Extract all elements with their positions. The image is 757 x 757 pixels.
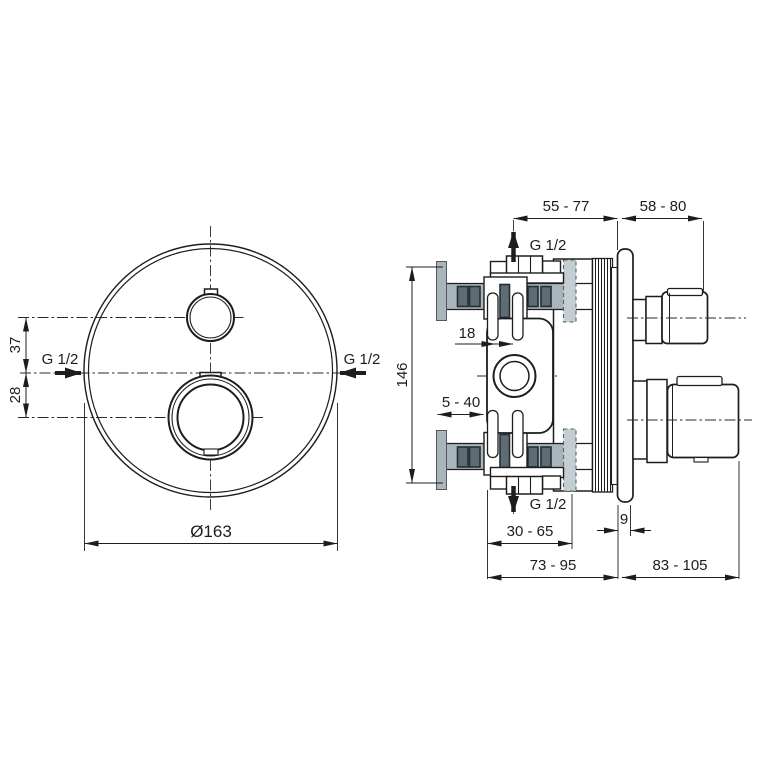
volume-knob — [169, 373, 253, 460]
pipe-clip — [541, 447, 551, 467]
front-view: 37 28 G 1/2 G 1/2 Ø163 — [7, 226, 380, 551]
dim-label-55-77: 55 - 77 — [543, 198, 590, 215]
temperature-handle-side — [633, 289, 708, 344]
wall-plate — [618, 249, 634, 502]
technical-drawing: 37 28 G 1/2 G 1/2 Ø163 — [0, 0, 757, 757]
pipe-clip — [528, 447, 538, 467]
wall-bracket-bottom — [437, 431, 447, 490]
pipe-clip — [541, 287, 551, 307]
dim-label-83-105: 83 - 105 — [652, 557, 707, 574]
volume-knob-outer — [169, 376, 253, 460]
dim-label-9: 9 — [620, 511, 628, 528]
outlet-label-top: G 1/2 — [530, 237, 567, 254]
dim-label-73-95: 73 - 95 — [530, 557, 577, 574]
adjust-sleeve-top — [564, 260, 577, 322]
pipe-clip — [458, 287, 469, 307]
technical-drawing-page: 37 28 G 1/2 G 1/2 Ø163 — [0, 0, 757, 757]
valve-bottom-dark-slot — [500, 435, 510, 468]
pipe-clip — [470, 287, 481, 307]
valve-slot — [513, 293, 524, 340]
inlet-label-right: G 1/2 — [344, 351, 381, 368]
outlet-label-bottom: G 1/2 — [530, 496, 567, 513]
volume-knob-bottom-notch — [204, 449, 218, 455]
pipe-clip — [528, 287, 538, 307]
inlet-left: G 1/2 — [42, 351, 81, 373]
dimension-37-28: 37 28 — [7, 318, 26, 418]
side-view: G 1/2 G 1/2 55 - 77 58 - 80 146 18 — [394, 198, 752, 579]
dim-label-28: 28 — [7, 387, 24, 404]
pipe-clip — [470, 447, 481, 467]
dim-label-18: 18 — [459, 325, 476, 342]
inlet-label-left: G 1/2 — [42, 351, 79, 368]
valve-top-dark-slot — [500, 285, 510, 318]
bottom-outlet-hex — [491, 468, 564, 495]
valve-slot — [513, 411, 524, 458]
threaded-section — [593, 259, 613, 493]
pipe-clip — [458, 447, 469, 467]
dimension-plaster-5-40: 5 - 40 — [438, 394, 484, 415]
valve-slot — [488, 293, 499, 340]
wall-bracket-top — [437, 262, 447, 321]
inlet-right: G 1/2 — [340, 351, 380, 373]
adjust-sleeve-bottom — [564, 429, 577, 491]
volume-handle-side — [633, 377, 739, 463]
dim-label-30-65: 30 - 65 — [507, 523, 554, 540]
dim-label-146: 146 — [394, 362, 411, 387]
dim-label-58-80: 58 - 80 — [640, 198, 687, 215]
cartridge-inner — [500, 362, 529, 391]
plate-step — [612, 268, 618, 485]
dim-label-37: 37 — [7, 337, 24, 354]
dim-label-5-40: 5 - 40 — [442, 394, 480, 411]
valve-slot — [488, 411, 499, 458]
dim-label-diameter: Ø163 — [190, 522, 232, 541]
temperature-knob-outer — [187, 294, 234, 341]
dimension-height-146: 146 — [394, 267, 443, 483]
temperature-knob — [187, 289, 234, 341]
